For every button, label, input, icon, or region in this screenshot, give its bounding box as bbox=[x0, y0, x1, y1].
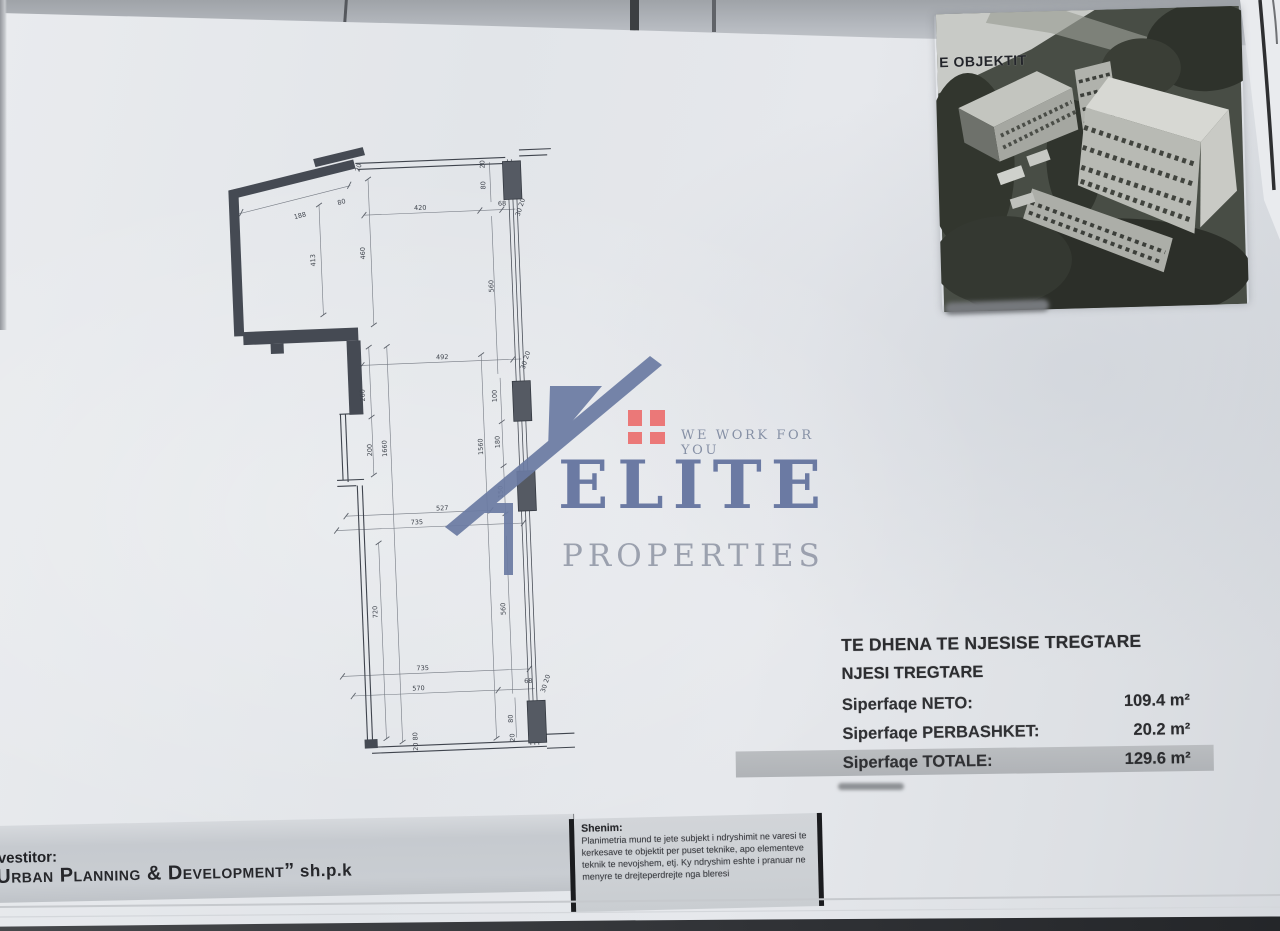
scanned-floorplan-document: 20188804134604206830 20208056049230 2026… bbox=[0, 0, 1280, 931]
dimension-label: 80 bbox=[479, 181, 487, 190]
dimension-label: 560 bbox=[487, 280, 495, 293]
row-value: 129.6 m² bbox=[1125, 749, 1191, 769]
row-label: Siperfaqe PERBASHKET: bbox=[842, 722, 1039, 743]
dimension-label: 68 bbox=[498, 199, 507, 207]
logo-brand-name: ELITE bbox=[558, 446, 830, 524]
table-row: Siperfaqe TOTALE:129.6 m² bbox=[843, 749, 1191, 783]
logo-brand-subname: PROPERTIES bbox=[562, 538, 825, 574]
building-render bbox=[934, 6, 1249, 312]
dimension-label: 720 bbox=[371, 606, 379, 619]
page-left-edge bbox=[0, 0, 7, 330]
investor-section: vestitor: Urban Planning & Development” … bbox=[0, 814, 576, 903]
dimension-label: 200 bbox=[366, 444, 374, 457]
dimension-label: 460 bbox=[359, 247, 367, 260]
table-rows: Siperfaqe NETO:109.4 m²Siperfaqe PERBASH… bbox=[842, 690, 1271, 783]
row-value: 20.2 m² bbox=[1133, 720, 1190, 740]
dimension-label: 1660 bbox=[381, 440, 390, 457]
dimension-label: 20 bbox=[508, 733, 516, 742]
dimension-label: 188 bbox=[293, 210, 307, 221]
company-suffix: sh.p.k bbox=[295, 861, 353, 881]
dimension-label: 80 bbox=[507, 714, 515, 723]
paper-edge-line bbox=[343, 0, 348, 24]
note-body: Planimetria mund te jete subjekt i ndrys… bbox=[581, 830, 811, 883]
dimension-label: 68 bbox=[524, 677, 533, 685]
dimension-label: 20 80 bbox=[411, 732, 420, 751]
photo-caption: E OBJEKTIT bbox=[939, 52, 1027, 70]
paper-edge-line bbox=[712, 0, 716, 32]
dimension-label: 20 bbox=[478, 160, 486, 169]
dimension-label: 735 bbox=[416, 664, 429, 672]
dimension-label: 80 bbox=[336, 197, 346, 207]
dimension-label: 260 bbox=[358, 389, 366, 402]
table-title: TE DHENA TE NJESISE TREGTARE bbox=[841, 629, 1269, 656]
dimension-label: 30 20 bbox=[539, 674, 552, 694]
row-label: Siperfaqe NETO: bbox=[842, 694, 973, 714]
dimension-label: 20 bbox=[354, 163, 364, 173]
dimension-label: 735 bbox=[410, 518, 423, 526]
dimension-label: 30 20 bbox=[514, 197, 527, 217]
redacted-text-mark bbox=[945, 299, 1049, 315]
row-value: 109.4 m² bbox=[1124, 691, 1190, 711]
dimension-label: 570 bbox=[412, 684, 425, 692]
building-aerial-photo: E OBJEKTIT bbox=[934, 6, 1249, 312]
dimension-label: 560 bbox=[499, 603, 507, 616]
unit-data-table: TE DHENA TE NJESISE TREGTARE NJESI TREGT… bbox=[841, 629, 1271, 783]
elite-properties-watermark: WE WORK FOR YOU ELITE PROPERTIES bbox=[440, 350, 850, 600]
dimension-label: 420 bbox=[414, 204, 427, 212]
paper-edge-line bbox=[630, 0, 639, 38]
window-squares-icon bbox=[628, 410, 665, 444]
ink-smudge bbox=[838, 783, 904, 790]
table-subtitle: NJESI TREGTARE bbox=[841, 659, 1269, 684]
row-label: Siperfaqe TOTALE: bbox=[843, 752, 993, 772]
dimension-label: 413 bbox=[309, 254, 317, 267]
company-name: Urban Planning & Development” bbox=[0, 860, 295, 888]
